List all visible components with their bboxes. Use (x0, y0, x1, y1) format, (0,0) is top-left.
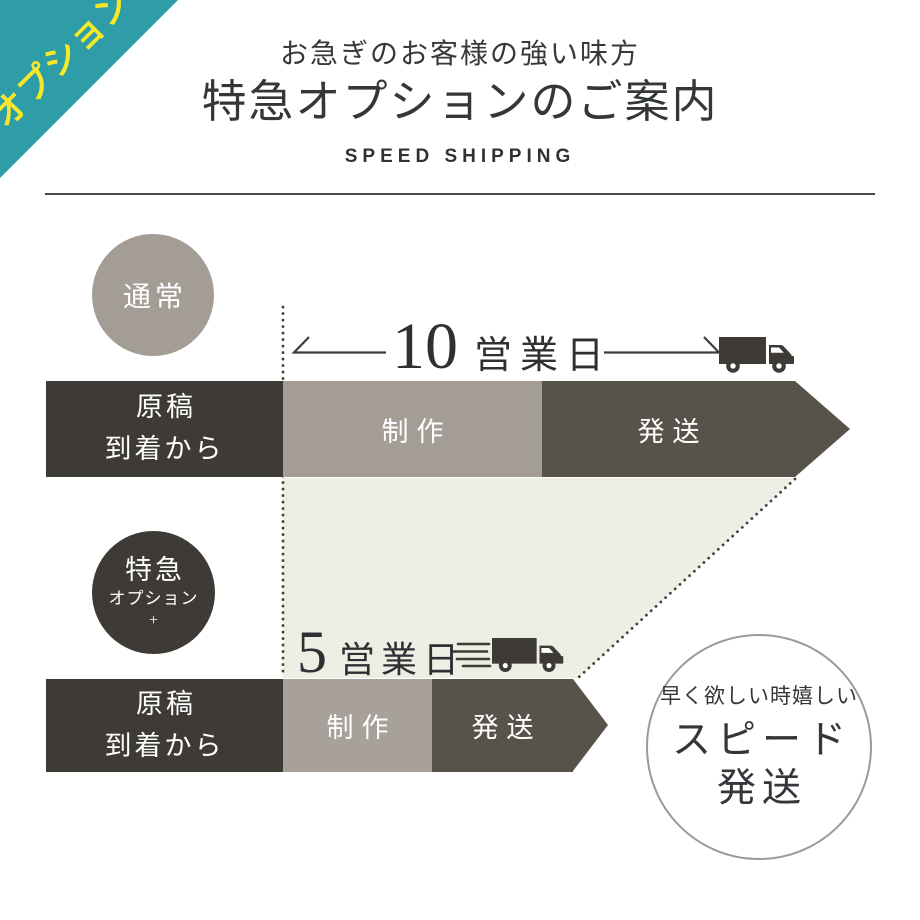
express-truck-icon (492, 638, 563, 672)
express-shipping-segment: 発送 (432, 679, 573, 772)
express-duration-label: 5 営業日 (297, 622, 465, 682)
page-title: 特急オプションのご案内 (0, 77, 920, 129)
speed-circle-caption: 早く欲しい時嬉しい (660, 686, 858, 707)
header-divider (45, 193, 875, 195)
normal-badge: 通常 (92, 234, 214, 356)
express-start-segment: 原稿 到着から (46, 679, 283, 772)
normal-timeline-bar: 原稿 到着から 制作 発送 (46, 381, 850, 477)
express-badge: 特急 オプション + (92, 531, 215, 654)
normal-duration-number: 10 (392, 314, 458, 380)
header-tagline: お急ぎのお客様の強い味方 (0, 40, 920, 71)
normal-bar-arrowhead (795, 381, 850, 477)
express-duration-unit: 営業日 (339, 642, 465, 678)
normal-duration-unit: 営業日 (474, 337, 612, 375)
speed-shipping-circle: 早く欲しい時嬉しい スピード 発送 (646, 634, 872, 860)
express-badge-subtitle: オプション (109, 590, 199, 607)
normal-start-segment: 原稿 到着から (46, 381, 283, 477)
express-bar-arrowhead (573, 679, 608, 771)
express-badge-title: 特急 (122, 557, 185, 584)
speed-circle-title-line1: スピード (666, 721, 852, 760)
speed-circle-title-line2: 発送 (711, 769, 807, 808)
express-timeline-bar: 原稿 到着から 制作 発送 (46, 679, 608, 772)
express-badge-plus: + (149, 613, 158, 629)
express-duration-number: 5 (297, 622, 327, 682)
normal-badge-label: 通常 (119, 275, 187, 315)
page-subtitle-en: SPEED SHIPPING (0, 146, 920, 168)
express-production-segment: 制作 (283, 679, 432, 772)
normal-duration-label: 10 営業日 (392, 314, 612, 380)
delivery-truck-icon (719, 337, 794, 373)
speed-shipping-infographic: オプション お急ぎのお客様の強い味方 特急オプションのご案内 SPEED SHI… (0, 0, 920, 920)
normal-production-segment: 制作 (283, 381, 542, 477)
normal-shipping-segment: 発送 (542, 381, 795, 477)
